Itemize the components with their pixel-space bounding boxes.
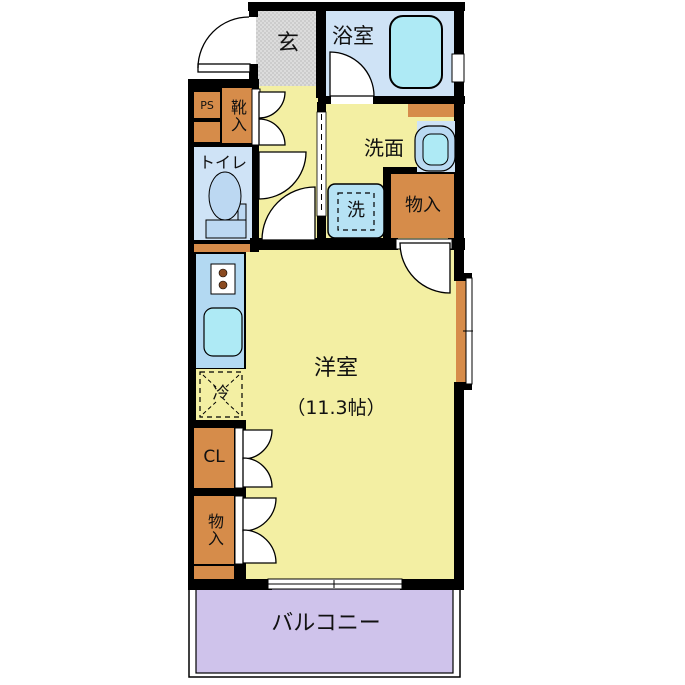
storage-door-panel: [235, 496, 243, 564]
shoe-cabinet-box: [222, 88, 252, 143]
balcony-floor: [196, 589, 453, 673]
bath-counter-strip: [408, 104, 454, 117]
storage-lower-box: [194, 496, 234, 564]
genkan-floor: [256, 8, 318, 88]
wall-washroom-left-b: [317, 214, 326, 240]
wall-entry-top-stub: [249, 2, 258, 17]
bathtub-icon: [390, 16, 442, 88]
floorplan-page: { "rooms": { "genkan": "玄", "bathroom": …: [0, 0, 685, 685]
stove-burner-icon: [219, 281, 227, 289]
counter-strip: [194, 244, 250, 252]
closet-box: [194, 428, 234, 488]
wall-bottom-right: [400, 579, 464, 590]
toilet-tank-icon: [206, 220, 246, 238]
storage-upper-box: [391, 174, 455, 238]
entry-door-leaf: [198, 64, 250, 72]
washbasin-bowl-icon: [423, 134, 448, 165]
wall-top: [248, 2, 465, 11]
wall-bottom-left: [188, 579, 272, 590]
pipe-space-box: [194, 92, 220, 118]
entry-door-arc: [198, 17, 249, 68]
refrigerator-area: [196, 369, 246, 420]
wall-right-c: [454, 390, 464, 590]
kitchen-sink-icon: [204, 308, 242, 356]
closet-door-panel: [235, 428, 243, 488]
floorplan-drawing: [0, 0, 685, 685]
wall-genkan-bath: [316, 2, 326, 98]
stove-icon: [211, 264, 235, 294]
bath-doorway-gap: [331, 96, 373, 104]
bathroom-window: [452, 54, 464, 82]
wall-right-a: [454, 2, 464, 56]
toilet-bowl-icon: [209, 172, 241, 220]
main-room-floor: [240, 240, 456, 582]
stove-burner-icon: [219, 269, 227, 277]
pipe-space-box-2: [194, 122, 220, 142]
